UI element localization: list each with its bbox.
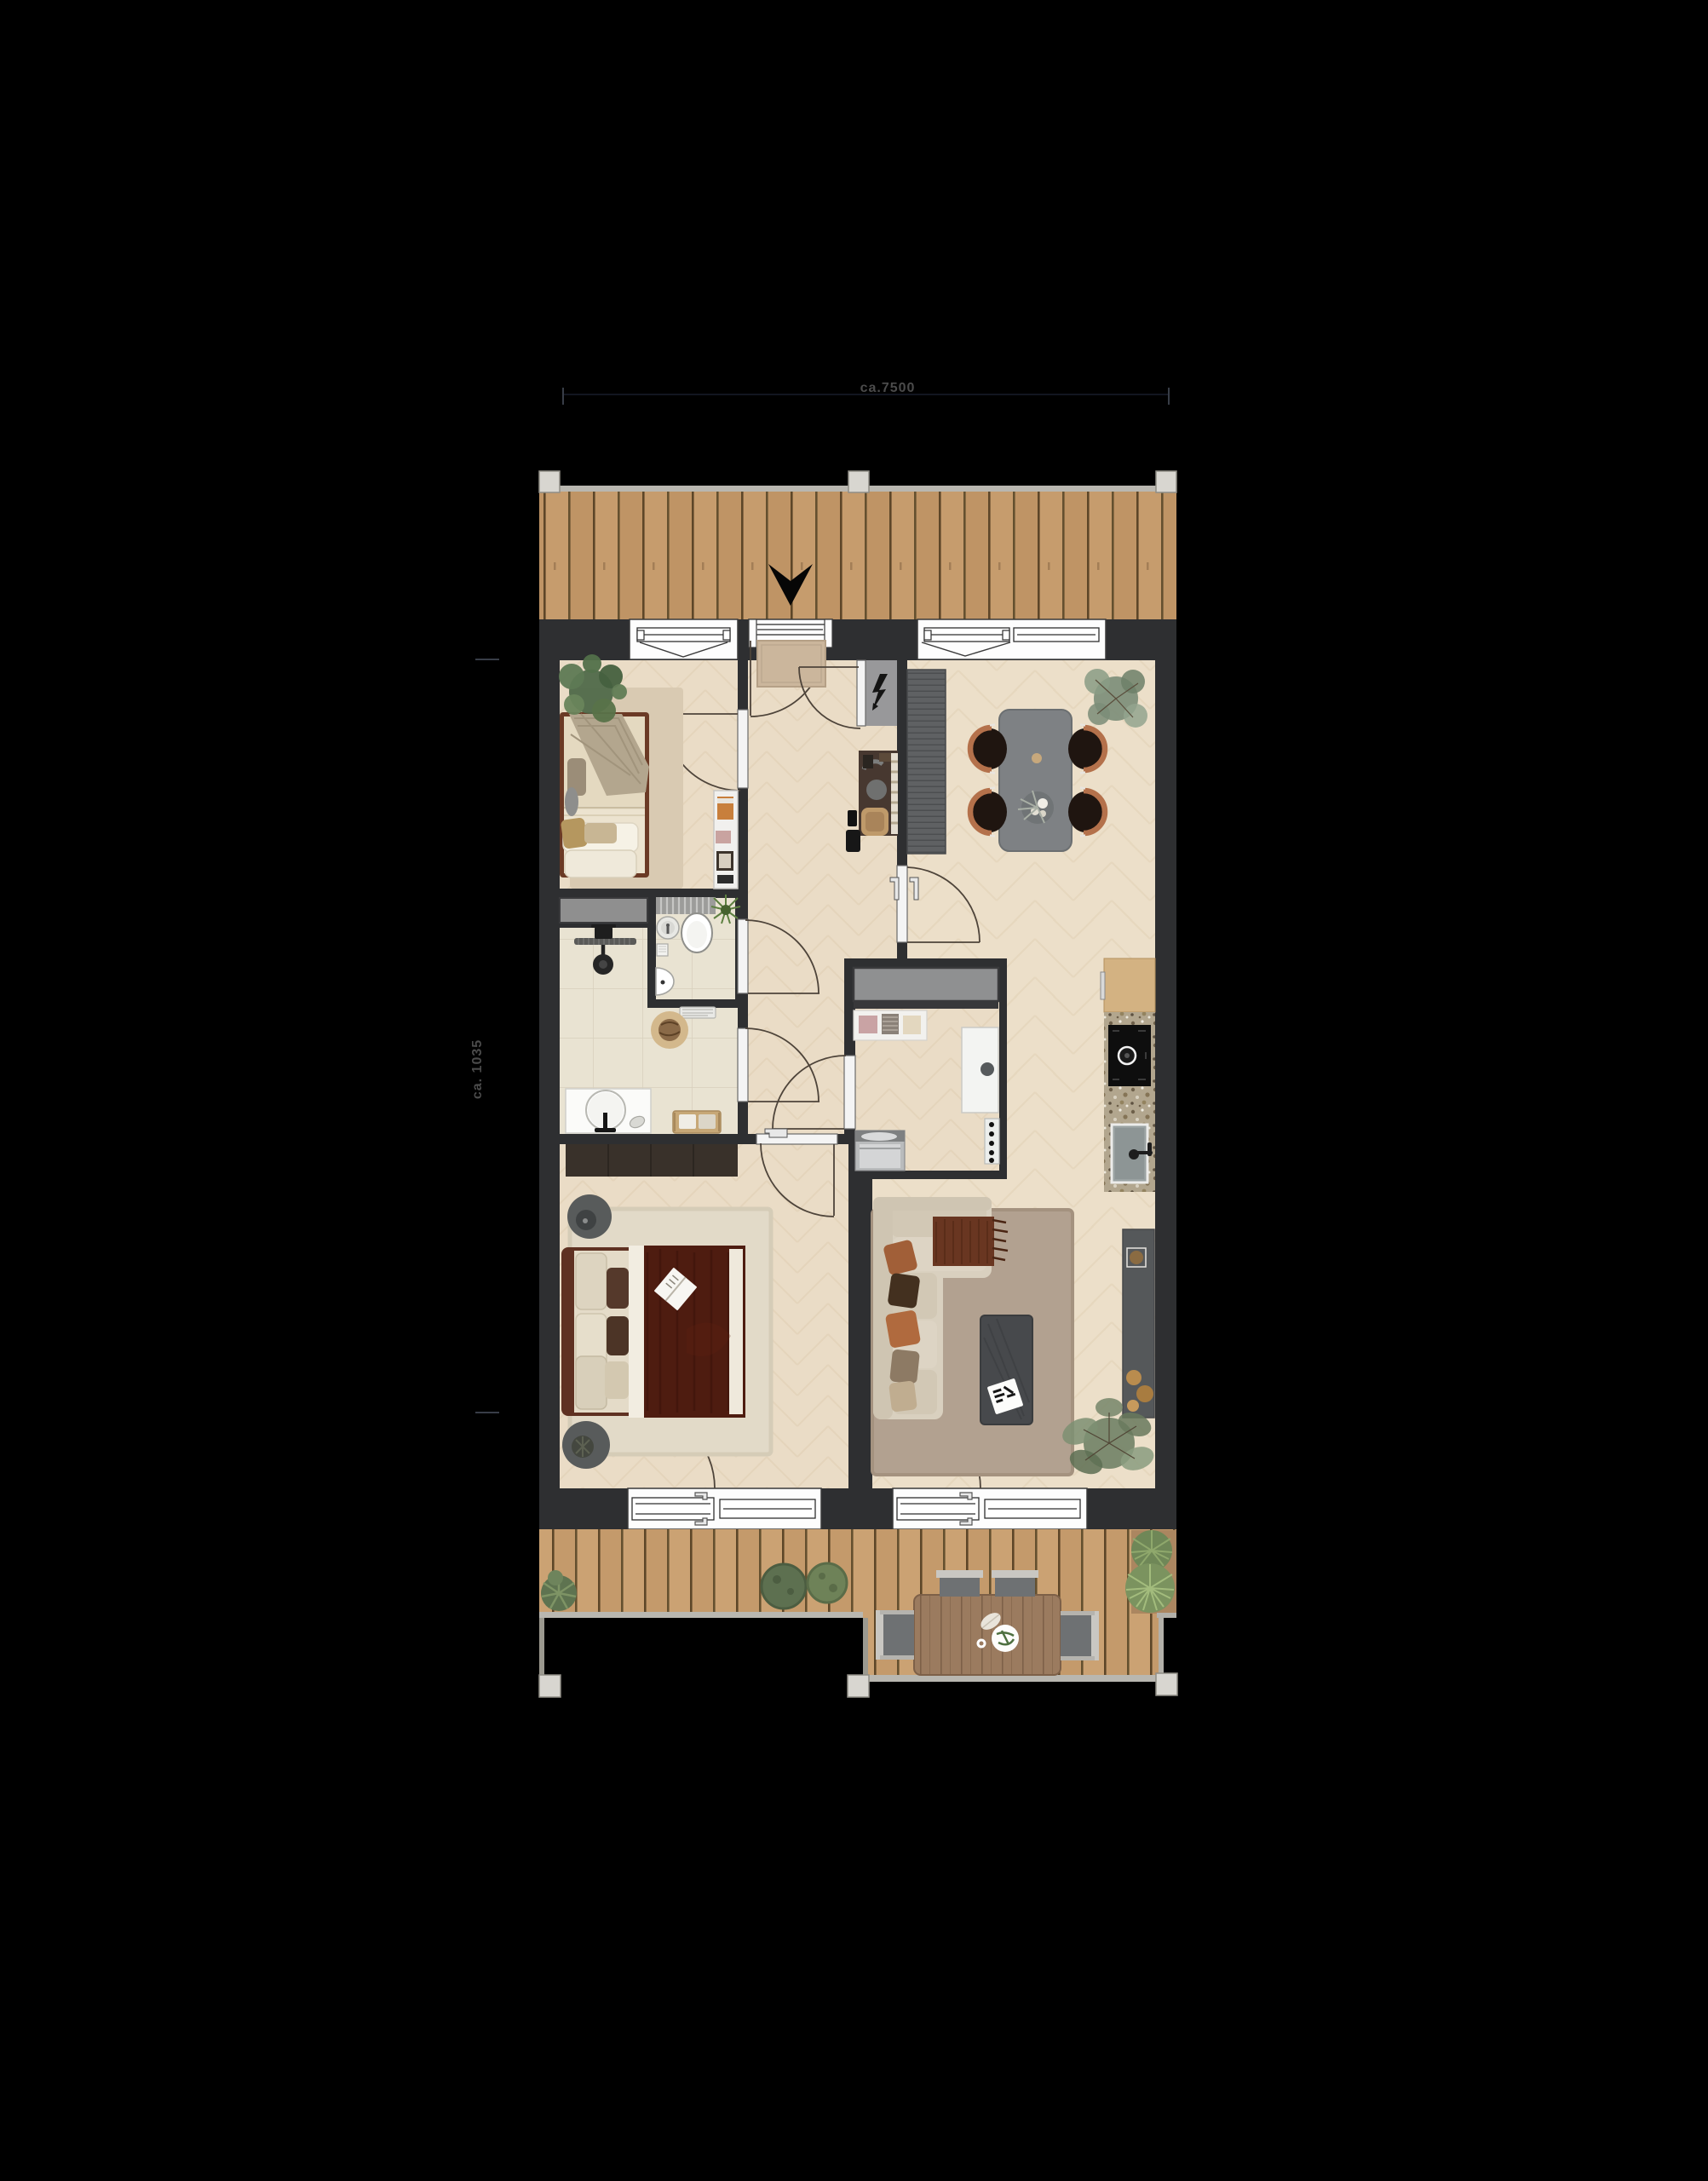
- svg-text:ca.7500: ca.7500: [860, 381, 916, 395]
- svg-text:ca. 1035: ca. 1035: [470, 1039, 485, 1099]
